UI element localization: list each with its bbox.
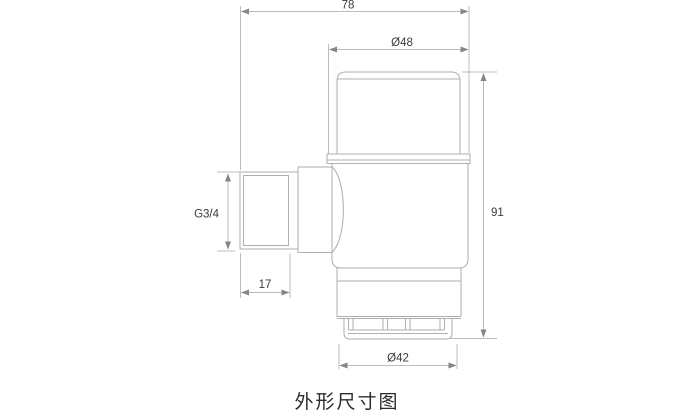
dimension-total-width-label: 78 <box>342 0 355 12</box>
dimension-thread-length: 17 <box>241 253 291 298</box>
bottom-cap-shape <box>344 319 452 340</box>
dimension-total-height-label: 91 <box>491 207 504 219</box>
inlet-port-outer-shape <box>240 172 298 249</box>
dimension-inlet-thread: G3/4 <box>194 172 240 251</box>
dimension-cap-diameter-label: Ø48 <box>391 37 413 49</box>
dimension-thread-length-label: 17 <box>259 279 272 291</box>
dimension-outlet-diameter-label: Ø42 <box>387 353 409 365</box>
dimension-outlet-diameter: Ø42 <box>339 344 457 369</box>
dimension-inlet-thread-label: G3/4 <box>194 209 220 221</box>
valve-outline <box>240 72 470 339</box>
lower-body-shape <box>337 268 461 317</box>
valve-cap-shape <box>337 72 460 154</box>
drawing-caption: 外形尺寸图 <box>294 391 399 412</box>
side-port-boss-shape <box>298 167 332 253</box>
valve-body-shape <box>332 164 468 269</box>
valve-dimension-drawing: 78 Ø48 91 G3/4 17 Ø42 外形尺寸图 <box>0 0 700 412</box>
valve-flange-shape <box>327 154 470 164</box>
dimension-drawing-page: 78 Ø48 91 G3/4 17 Ø42 外形尺寸图 <box>0 0 700 412</box>
